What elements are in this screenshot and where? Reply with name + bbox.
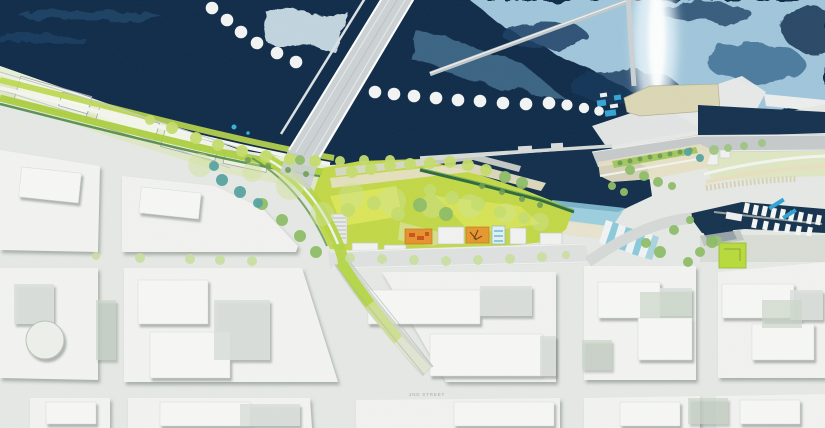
paper-grain <box>0 0 825 428</box>
site-plan-image: 2ND STREET <box>0 0 825 428</box>
site-plan-svg: 2ND STREET <box>0 0 825 428</box>
atmosphere <box>0 0 825 428</box>
